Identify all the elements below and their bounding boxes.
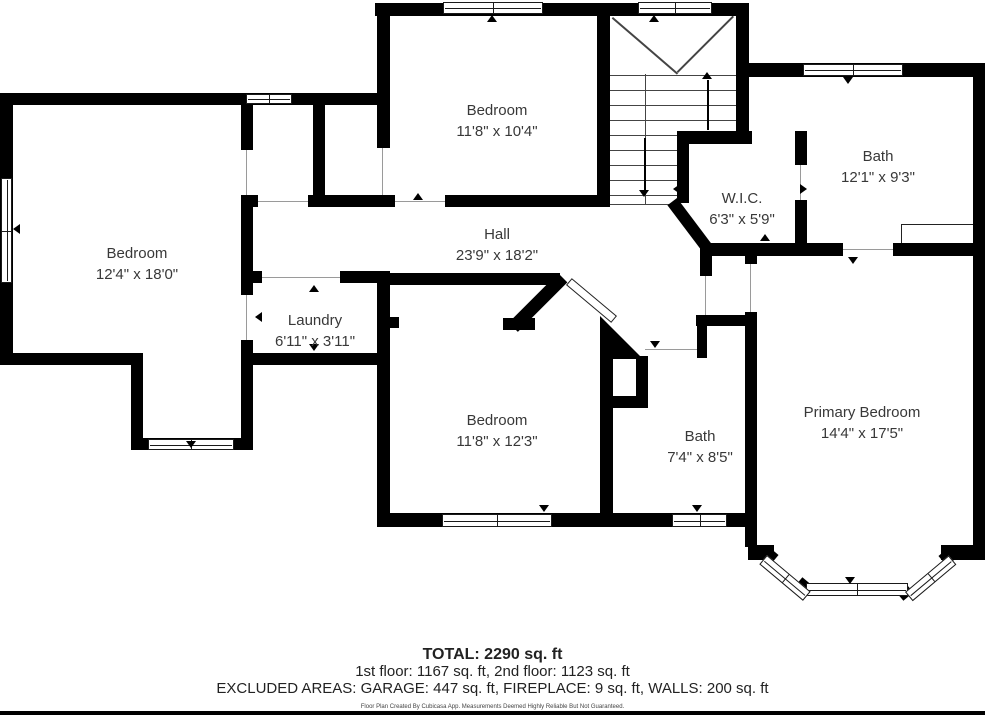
window-marker <box>539 505 549 512</box>
stair-winder-line <box>677 16 734 73</box>
window-marker <box>845 577 855 584</box>
wall <box>241 271 262 283</box>
floor-areas: 1st floor: 1167 sq. ft, 2nd floor: 1123 … <box>0 663 985 680</box>
wall <box>445 195 610 207</box>
wall <box>795 131 807 165</box>
wall <box>748 243 843 256</box>
room-label-laundry: Laundry 6'11" x 3'11" <box>275 310 355 352</box>
wall <box>697 315 707 358</box>
door-opening <box>705 276 706 315</box>
room-name: Primary Bedroom <box>804 402 921 423</box>
wall <box>0 353 143 365</box>
bay-window-right <box>905 555 956 601</box>
window-marker <box>186 441 196 448</box>
window <box>442 514 552 527</box>
room-label-bedroom-middle: Bedroom 11'8" x 12'3" <box>456 410 537 452</box>
door-opening <box>246 295 247 340</box>
room-label-bath-upper: Bath 12'1" x 9'3" <box>841 146 915 188</box>
door-arrow <box>673 184 680 194</box>
stair-tread <box>610 135 677 136</box>
door-opening <box>258 201 308 202</box>
disclaimer: Floor Plan Created By Cubicasa App. Meas… <box>0 703 985 711</box>
wall <box>241 353 387 365</box>
wic-diagonal-wall <box>667 198 711 252</box>
room-dims: 11'8" x 10'4" <box>456 121 537 142</box>
door-arrow <box>413 193 423 200</box>
wall <box>636 356 648 408</box>
room-label-bedroom-top: Bedroom 11'8" x 10'4" <box>456 100 537 142</box>
door-arrow <box>309 285 319 292</box>
room-name: Bedroom <box>456 100 537 121</box>
wall <box>340 271 387 283</box>
room-label-primary-bedroom: Primary Bedroom 14'4" x 17'5" <box>804 402 921 444</box>
wall <box>390 273 560 285</box>
stair-up-arrow-shaft <box>707 80 709 130</box>
room-dims: 11'8" x 12'3" <box>456 431 537 452</box>
wall <box>597 3 610 207</box>
room-dims: 6'11" x 3'11" <box>275 331 355 352</box>
window <box>803 64 903 76</box>
door-opening <box>843 249 893 250</box>
door-opening <box>395 201 445 202</box>
room-name: Bedroom <box>96 243 178 264</box>
room-dims: 23'9" x 18'2" <box>456 245 538 266</box>
wall <box>241 195 258 207</box>
stair-tread <box>610 75 736 76</box>
window-marker <box>843 77 853 84</box>
stair-down-arrow <box>639 190 649 197</box>
stair-winder-line <box>612 17 678 74</box>
window-marker <box>13 224 20 234</box>
stair-tread <box>610 105 736 106</box>
stair-up-arrow <box>702 72 712 79</box>
door-opening <box>262 277 340 278</box>
room-label-hall: Hall 23'9" x 18'2" <box>456 224 538 266</box>
fireplace <box>600 316 643 359</box>
door-arrow <box>255 312 262 322</box>
window-marker <box>649 15 659 22</box>
window <box>1 178 12 283</box>
room-dims: 12'4" x 18'0" <box>96 264 178 285</box>
summary-block: TOTAL: 2290 sq. ft 1st floor: 1167 sq. f… <box>0 646 985 711</box>
stair-tread <box>610 120 736 121</box>
open-door-leaf <box>566 278 617 323</box>
wall <box>377 271 390 527</box>
wall <box>893 243 985 256</box>
stair-down-arrow-shaft <box>644 138 646 192</box>
door-opening <box>800 165 801 200</box>
wall <box>973 63 985 560</box>
window <box>246 94 292 104</box>
excluded-areas: EXCLUDED AREAS: GARAGE: 447 sq. ft, FIRE… <box>0 680 985 697</box>
stair-tread <box>610 90 736 91</box>
room-name: Bath <box>667 426 733 447</box>
wall <box>600 356 613 527</box>
room-label-wic: W.I.C. 6'3" x 5'9" <box>709 188 775 230</box>
room-name: W.I.C. <box>709 188 775 209</box>
door-opening <box>246 150 247 195</box>
window-marker <box>692 505 702 512</box>
wall <box>377 3 390 148</box>
wall <box>387 317 399 328</box>
window <box>443 2 543 14</box>
room-name: Hall <box>456 224 538 245</box>
window <box>672 514 727 527</box>
door-arrow <box>800 184 807 194</box>
wall <box>745 312 757 547</box>
door-opening <box>750 264 751 312</box>
wall <box>377 195 395 207</box>
wall <box>131 353 143 450</box>
wall <box>745 256 757 264</box>
room-name: Bath <box>841 146 915 167</box>
room-label-bedroom-left: Bedroom 12'4" x 18'0" <box>96 243 178 285</box>
total-area: TOTAL: 2290 sq. ft <box>0 646 985 663</box>
door-arrow <box>650 341 660 348</box>
window-marker <box>487 15 497 22</box>
bottom-border <box>0 711 985 715</box>
door-arrow <box>760 234 770 241</box>
door-arrow <box>380 312 387 322</box>
floor-plan: Bedroom 11'8" x 10'4" Bath 12'1" x 9'3" … <box>0 0 985 715</box>
door-opening <box>382 148 383 196</box>
room-dims: 7'4" x 8'5" <box>667 447 733 468</box>
room-dims: 14'4" x 17'5" <box>804 423 921 444</box>
room-dims: 6'3" x 5'9" <box>709 209 775 230</box>
bay-window-center <box>806 583 908 596</box>
wall <box>313 93 325 207</box>
door-opening <box>645 349 697 350</box>
window-marker <box>185 95 195 102</box>
room-name: Bedroom <box>456 410 537 431</box>
room-dims: 12'1" x 9'3" <box>841 167 915 188</box>
window <box>638 2 712 14</box>
room-label-bath-lower: Bath 7'4" x 8'5" <box>667 426 733 468</box>
door-arrow <box>848 257 858 264</box>
wall <box>700 256 712 276</box>
room-name: Laundry <box>275 310 355 331</box>
